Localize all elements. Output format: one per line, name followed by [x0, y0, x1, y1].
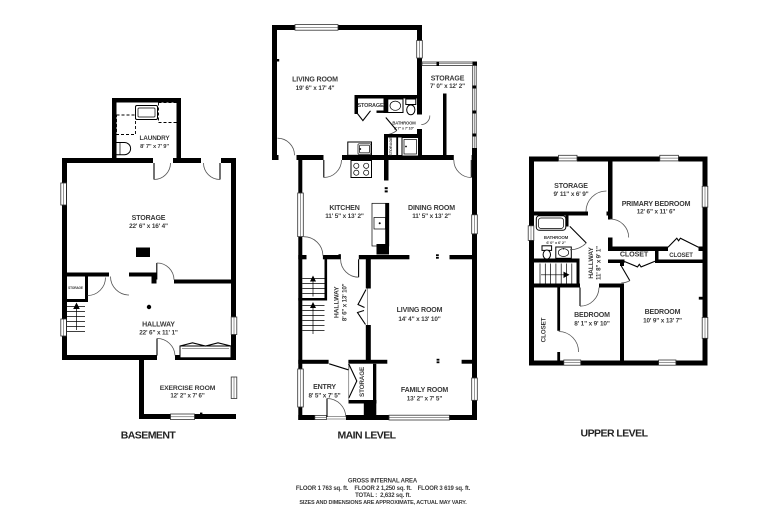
svg-text:STORAGE: STORAGE	[431, 76, 465, 83]
svg-text:LAUNDRY: LAUNDRY	[140, 135, 171, 142]
svg-text:KITCHEN: KITCHEN	[329, 205, 359, 212]
svg-text:MAIN LEVEL: MAIN LEVEL	[337, 430, 396, 442]
svg-text:STORAGE: STORAGE	[388, 137, 393, 156]
svg-text:STORAGE: STORAGE	[357, 103, 384, 109]
svg-text:12' 2" x 7' 6": 12' 2" x 7' 6"	[170, 393, 204, 400]
svg-text:19' 6" x 17' 4": 19' 6" x 17' 4"	[296, 85, 335, 92]
svg-text:FAMILY ROOM: FAMILY ROOM	[401, 387, 449, 394]
svg-text:CLOSET: CLOSET	[669, 253, 693, 259]
svg-text:HALLWAY: HALLWAY	[334, 286, 341, 318]
svg-text:10' 9" x 13' 7": 10' 9" x 13' 7"	[643, 318, 682, 325]
svg-text:7' 0" x 12' 2": 7' 0" x 12' 2"	[430, 83, 465, 90]
svg-text:UPPER LEVEL: UPPER LEVEL	[581, 428, 649, 440]
svg-text:8' 6" x 13' 10": 8' 6" x 13' 10"	[342, 283, 349, 321]
svg-text:HALLWAY: HALLWAY	[142, 322, 175, 329]
svg-text:STORAGE: STORAGE	[554, 183, 588, 190]
svg-text:HALLWAY: HALLWAY	[588, 247, 595, 279]
svg-text:11' 8" x 9' 1": 11' 8" x 9' 1"	[596, 246, 603, 280]
svg-text:BATHROOM: BATHROOM	[392, 121, 416, 126]
svg-text:BEDROOM: BEDROOM	[645, 309, 681, 316]
svg-text:EXERCISE ROOM: EXERCISE ROOM	[160, 385, 216, 392]
svg-text:STORAGE: STORAGE	[132, 215, 166, 222]
svg-text:ENTRY: ENTRY	[313, 384, 336, 391]
svg-text:6' 0" x 6' 2": 6' 0" x 6' 2"	[546, 240, 566, 245]
svg-text:STORAGE: STORAGE	[68, 286, 83, 290]
svg-text:LIVING ROOM: LIVING ROOM	[292, 77, 338, 84]
svg-text:PRIMARY BEDROOM: PRIMARY BEDROOM	[622, 201, 691, 208]
svg-text:TOTAL : 2,632 sq. ft.: TOTAL : 2,632 sq. ft.	[355, 493, 411, 499]
svg-text:22' 6" x 16' 4": 22' 6" x 16' 4"	[129, 223, 168, 230]
svg-text:8' 7" x 7' 9": 8' 7" x 7' 9"	[140, 144, 169, 150]
svg-text:8' 5" x 7' 5": 8' 5" x 7' 5"	[308, 393, 340, 400]
svg-text:CLOSET: CLOSET	[541, 317, 548, 342]
svg-text:9' 11" x 6' 9": 9' 11" x 6' 9"	[553, 191, 588, 198]
svg-text:12' 6" x 11' 6": 12' 6" x 11' 6"	[637, 209, 676, 216]
svg-text:11' 5" x 13' 2": 11' 5" x 13' 2"	[325, 213, 364, 220]
svg-text:13' 2" x 7' 5": 13' 2" x 7' 5"	[407, 396, 443, 403]
svg-text:BEDROOM: BEDROOM	[574, 312, 610, 319]
svg-text:BASEMENT: BASEMENT	[121, 430, 177, 442]
svg-text:DINING ROOM: DINING ROOM	[408, 205, 455, 212]
svg-text:CLOSET: CLOSET	[620, 250, 649, 259]
svg-text:22' 6" x 11' 1": 22' 6" x 11' 1"	[139, 330, 178, 337]
svg-text:LIVING ROOM: LIVING ROOM	[397, 307, 443, 314]
svg-text:SIZES AND DIMENSIONS ARE APPRO: SIZES AND DIMENSIONS ARE APPROXIMATE, AC…	[299, 500, 467, 506]
svg-text:8' 1" x 9' 10": 8' 1" x 9' 10"	[574, 321, 610, 328]
svg-text:11' 5" x 13' 2": 11' 5" x 13' 2"	[412, 213, 451, 220]
svg-text:GROSS INTERNAL AREA: GROSS INTERNAL AREA	[348, 478, 418, 484]
svg-text:STORAGE: STORAGE	[359, 367, 366, 397]
svg-text:14' 4" x 13' 10": 14' 4" x 13' 10"	[398, 316, 440, 323]
svg-text:FLOOR 1 763 sq. ft. FLOOR 2: FLOOR 1 763 sq. ft. FLOOR 2 1,250 sq. ft…	[296, 486, 471, 492]
